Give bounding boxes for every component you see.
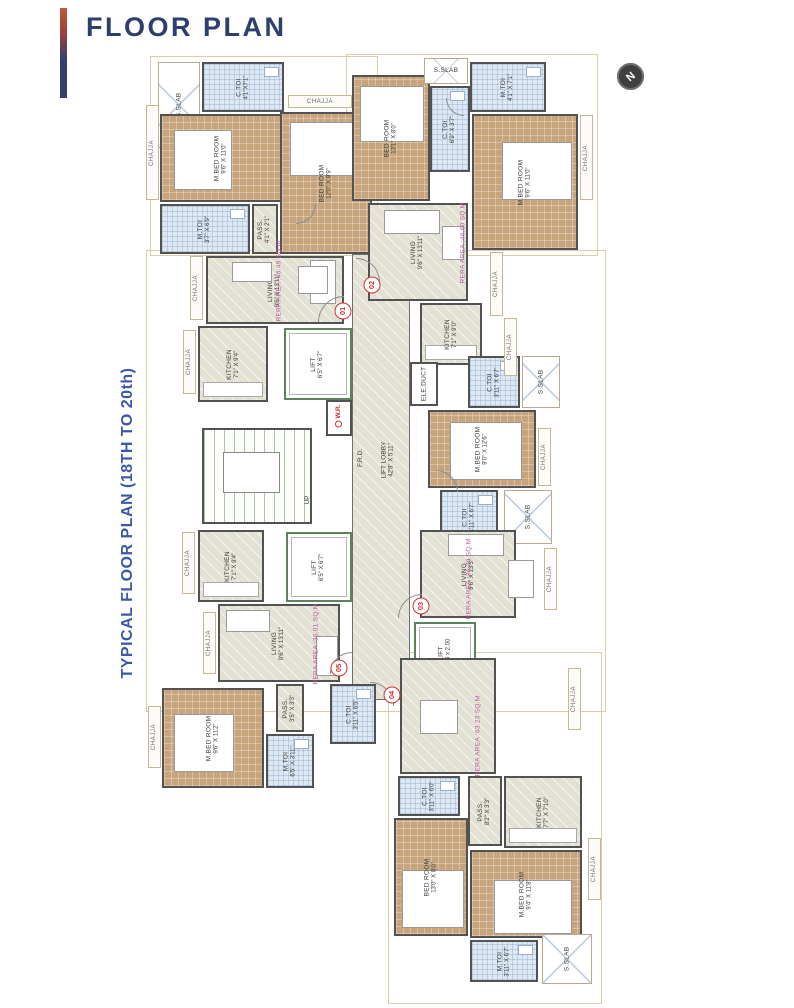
room-bed: M.BED ROOM9'6" X 11'2" bbox=[162, 688, 264, 788]
chajja-label: CHAJJA bbox=[307, 99, 333, 105]
room-label: PASS.4'1" X 2'1" bbox=[258, 215, 273, 242]
chajja-strip: CHAJJA bbox=[538, 428, 551, 486]
plan-text: W.R. bbox=[327, 412, 350, 420]
room-label: M.TOI4'1" X 7'1" bbox=[501, 73, 516, 100]
chajja-label: CHAJJA bbox=[584, 144, 590, 170]
room-label: KITCHEN7'1" X 9'0" bbox=[444, 319, 459, 350]
room-label: M.BED ROOM9'6" X 11'2" bbox=[206, 715, 221, 761]
room-toilet: C.TOI3'11" X 6'0" bbox=[398, 776, 460, 816]
room-label: KITCHEN7'1" X 9'4" bbox=[224, 551, 239, 582]
room-pass: PASS.8'2" X 3'3" bbox=[468, 776, 502, 846]
rera-area-label: RERA AREA :46.49 SQ.M bbox=[238, 278, 319, 285]
chajja-label: CHAJJA bbox=[542, 444, 548, 470]
rera-area-label: RERA AREA :46.60 SQ.M bbox=[422, 240, 503, 247]
room-label: C.TOI4'1"X7'1" bbox=[236, 75, 251, 99]
rera-area-text: RERA AREA :63.23 SQ.M bbox=[475, 695, 482, 776]
room-toilet: M.TOI3'7" X 6'9" bbox=[160, 204, 250, 254]
chajja-strip: CHAJJA bbox=[182, 532, 195, 594]
unit-number: 01 bbox=[339, 307, 348, 315]
chajja-label: CHAJJA bbox=[494, 271, 500, 297]
chajja-label: CHAJJA bbox=[187, 349, 193, 375]
plan-text: LIFT LOBBY42'8" X 5'11" bbox=[370, 453, 407, 468]
room-label: C.TOI3'11" X 6'5" bbox=[346, 699, 361, 729]
rera-area-label: RERA AREA :36.01 SQ.M bbox=[275, 641, 356, 648]
room-bed: M.BED ROOM9'4" X 11'8" bbox=[470, 850, 582, 938]
room-label: S.SLAB bbox=[537, 370, 545, 395]
rera-area-text: RERA AREA :36.30 SQ.M bbox=[466, 538, 473, 619]
room-label: M.BED ROOM9'0" X 12'6" bbox=[475, 426, 490, 472]
room-label: KITCHEN7'1" X 9'4" bbox=[226, 349, 241, 380]
rera-area-text: RERA AREA :36.01 SQ.M bbox=[313, 603, 320, 684]
room-lift: LIFT6'5" X 6'7" bbox=[286, 532, 352, 602]
room-label: M.BED ROOM9'6" X 11'0" bbox=[518, 159, 533, 205]
room-kitchen: KITCHEN7'1" X 9'4" bbox=[198, 326, 268, 402]
furniture-item bbox=[226, 610, 270, 632]
room-label: LIFT6'5" X 6'7" bbox=[311, 350, 326, 377]
room-pass: PASS.4'1" X 2'1" bbox=[252, 204, 278, 254]
room-lift: LIFT6'5" X 6'7" bbox=[284, 328, 352, 400]
rera-area-label: RERA AREA :36.30 SQ.M bbox=[428, 576, 509, 583]
room-label: BED ROOM12'0" X 8'9" bbox=[319, 164, 334, 202]
rera-area-text: RERA AREA :46.60 SQ.M bbox=[460, 202, 467, 283]
chajja-label: CHAJJA bbox=[548, 566, 554, 592]
bed-furniture bbox=[502, 142, 572, 200]
room-kitchen: KITCHEN7'1" X 9'4" bbox=[198, 530, 264, 602]
unit-number: 02 bbox=[368, 281, 377, 289]
wr-circle-icon bbox=[335, 421, 342, 428]
chajja-strip: CHAJJA bbox=[588, 838, 601, 900]
chajja-label: CHAJJA bbox=[508, 334, 514, 360]
room-label: C.TOI3'11" X 6'0" bbox=[422, 781, 437, 811]
floor-plan-drawing: S.SLABC.TOI4'1"X7'1"M.BED ROOM9'6" X 11'… bbox=[0, 0, 794, 1008]
room-label: BED ROOM13'0" X 8'0" bbox=[424, 858, 439, 896]
floor-plan-page: FLOOR PLAN TYPICAL FLOOR PLAN (18TH TO 2… bbox=[0, 0, 794, 1008]
room-label: S.SLAB bbox=[434, 67, 459, 75]
room-label: ELE.DUCT bbox=[420, 367, 428, 402]
chajja-strip: CHAJJA bbox=[146, 105, 159, 200]
chajja-label: CHAJJA bbox=[194, 275, 200, 301]
room-toilet: M.TOI3'11" X 6'7" bbox=[470, 940, 538, 982]
room-toilet: C.TOI4'1"X7'1" bbox=[202, 62, 284, 112]
room-label: M.BED ROOM9'4" X 11'8" bbox=[519, 871, 534, 917]
room-label: KITCHEN7'7" X 7'10" bbox=[536, 797, 551, 828]
room-label: S.SLAB bbox=[524, 505, 532, 530]
room-bed: M.BED ROOM9'6" X 11'0" bbox=[160, 114, 282, 202]
furniture-item bbox=[508, 560, 534, 598]
chajja-strip: CHAJJA bbox=[580, 115, 593, 200]
chajja-strip: CHAJJA bbox=[148, 706, 161, 768]
room-label: PASS.8'2" X 3'3" bbox=[478, 797, 493, 824]
room-slab: S.SLAB bbox=[542, 934, 592, 984]
unit-number: 05 bbox=[335, 664, 344, 672]
furniture-item bbox=[384, 210, 440, 234]
room-label: PASS.3'5" X 3'3" bbox=[283, 694, 298, 721]
room-label: M.TOI6'5" X 3'11" bbox=[283, 746, 298, 776]
chajja-label: CHAJJA bbox=[152, 724, 158, 750]
chajja-label: CHAJJA bbox=[207, 630, 213, 656]
room-label: C.TOI3'11" X 6'7" bbox=[462, 502, 477, 532]
chajja-strip: CHAJJA bbox=[504, 318, 517, 376]
room-slab: S.SLAB bbox=[522, 356, 560, 408]
room-shaft: ELE.DUCT bbox=[410, 362, 438, 406]
plan-text: UP bbox=[303, 496, 312, 504]
room-label: BED ROOM13'1" X 8'0" bbox=[384, 119, 399, 157]
unit-number-badge: 05 bbox=[331, 660, 348, 677]
chajja-strip: CHAJJA bbox=[183, 330, 196, 394]
chajja-strip: CHAJJA bbox=[544, 548, 557, 610]
room-label: S.SLAB bbox=[563, 947, 571, 972]
unit-number-badge: 01 bbox=[335, 303, 352, 320]
rera-area-label: RERA AREA :63.23 SQ.M bbox=[437, 733, 518, 740]
furniture-item bbox=[420, 700, 458, 734]
room-label: LIFT6'5" X 6'7" bbox=[312, 553, 327, 580]
plan-text-label: W.R. bbox=[335, 404, 343, 427]
plan-text: F.R.D. bbox=[352, 454, 370, 462]
room-bed: M.BED ROOM9'6" X 11'0" bbox=[472, 114, 578, 250]
chajja-strip: CHAJJA bbox=[490, 252, 503, 316]
chajja-label: CHAJJA bbox=[572, 686, 578, 712]
room-toilet: M.TOI6'5" X 3'11" bbox=[266, 734, 314, 788]
room-pass: PASS.3'5" X 3'3" bbox=[276, 684, 304, 732]
chajja-strip: CHAJJA bbox=[203, 612, 216, 674]
chajja-label: CHAJJA bbox=[186, 550, 192, 576]
chajja-label: CHAJJA bbox=[592, 856, 598, 882]
unit-number-badge: 03 bbox=[413, 598, 430, 615]
room-label: C.TOI6'9" X 3'7" bbox=[443, 115, 458, 142]
chajja-strip: CHAJJA bbox=[288, 95, 352, 108]
room-label: M.TOI3'11" X 6'7" bbox=[497, 946, 512, 976]
room-slab: S.SLAB bbox=[424, 58, 468, 84]
unit-number: 04 bbox=[388, 691, 397, 699]
unit-number: 03 bbox=[417, 602, 426, 610]
plan-text-label: LIFT LOBBY42'8" X 5'11" bbox=[381, 442, 396, 479]
plan-text-label: UP bbox=[304, 495, 312, 504]
room-toilet: M.TOI4'1" X 7'1" bbox=[470, 62, 546, 112]
chajja-strip: CHAJJA bbox=[568, 668, 581, 730]
room-label: M.TOI3'7" X 6'9" bbox=[198, 215, 213, 242]
bed-furniture bbox=[174, 714, 234, 772]
unit-number-badge: 04 bbox=[384, 687, 401, 704]
room-bed: BED ROOM13'0" X 8'0" bbox=[394, 818, 468, 936]
room-bed: BED ROOM13'1" X 8'0" bbox=[352, 75, 430, 201]
unit-number-badge: 02 bbox=[364, 277, 381, 294]
room-label: M.BED ROOM9'6" X 11'0" bbox=[214, 135, 229, 181]
room-kitchen: KITCHEN7'7" X 7'10" bbox=[504, 776, 582, 848]
room-stair bbox=[202, 428, 312, 524]
rera-area-text: RERA AREA :46.49 SQ.M bbox=[276, 240, 283, 321]
chajja-label: CHAJJA bbox=[150, 139, 156, 165]
room-label: C.TOI3'11" X 6'7" bbox=[487, 367, 502, 397]
chajja-strip: CHAJJA bbox=[190, 256, 203, 320]
furniture-item bbox=[448, 534, 504, 556]
plan-text-label: F.R.D. bbox=[357, 449, 365, 467]
